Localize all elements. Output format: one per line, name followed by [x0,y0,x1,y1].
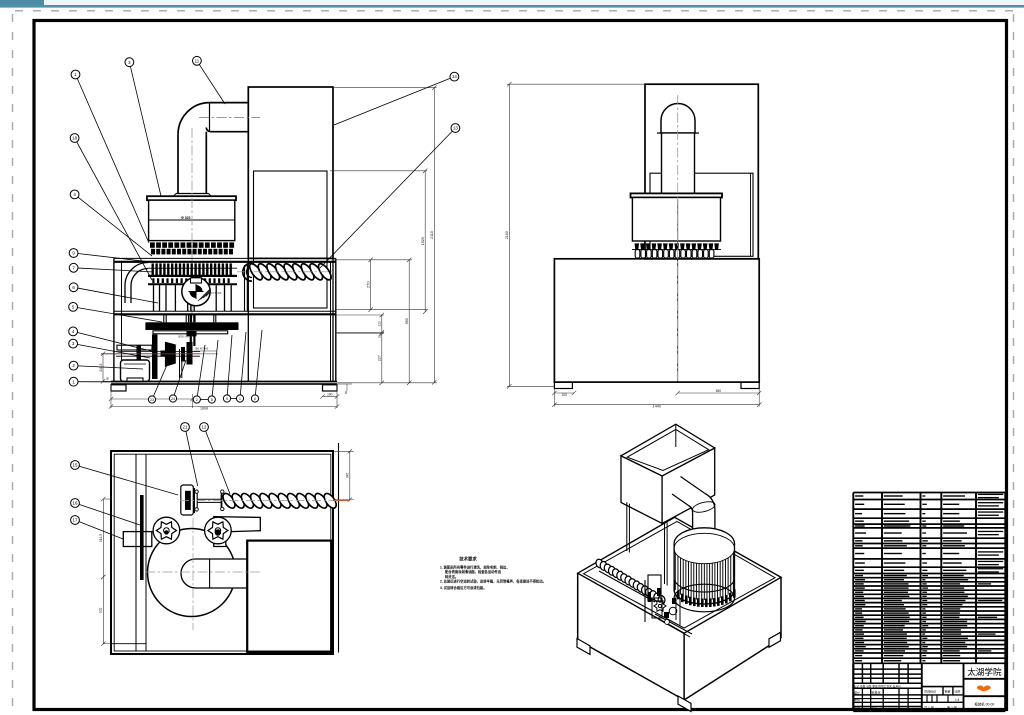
svg-text:转灵活。: 转灵活。 [445,574,458,579]
svg-text:11: 11 [195,58,200,63]
svg-text:技术要求: 技术要求 [459,556,477,563]
svg-text:瓶装机 00-00: 瓶装机 00-00 [975,702,995,707]
svg-text:270: 270 [365,281,370,288]
svg-text:18: 18 [72,136,77,141]
svg-text:1: 1 [239,397,241,401]
svg-text:3. 试运转合格后方可涂漆包装。: 3. 试运转合格后方可涂漆包装。 [440,585,487,590]
svg-text:570: 570 [99,607,103,613]
svg-text:5: 5 [226,397,228,401]
svg-text:8: 8 [211,398,213,402]
svg-text:23: 23 [150,398,154,402]
svg-text:227: 227 [378,355,382,361]
svg-text:Φ6 M7/h6: Φ6 M7/h6 [195,347,209,351]
svg-text:工艺: 工艺 [854,706,860,711]
svg-text:审核: 审核 [854,696,860,701]
svg-text:100: 100 [562,393,568,397]
svg-text:2160: 2160 [505,231,509,239]
svg-text:阶段标记: 阶段标记 [925,689,937,694]
svg-text:14: 14 [452,74,457,79]
svg-text:6: 6 [254,397,256,401]
svg-text:2: 2 [196,398,198,402]
svg-text:50: 50 [344,391,348,395]
svg-text:1. 装配前所有零件进行清洗，去除毛刺、锐边，: 1. 装配前所有零件进行清洗，去除毛刺、锐边， [440,565,510,570]
svg-text:100: 100 [327,393,333,397]
svg-text:2. 总装后进行空运转试验，运转平稳，无异常噪声，各连接处不: 2. 总装后进行空运转试验，运转平稳，无异常噪声，各连接处不得松动。 [440,579,546,584]
svg-text:设计: 设计 [854,689,860,694]
svg-text:Φ 525: Φ 525 [181,216,190,220]
svg-text:21: 21 [183,425,188,430]
svg-text:比例: 比例 [955,689,961,694]
svg-text:重量: 重量 [945,689,951,694]
svg-text:345: 345 [346,473,350,479]
svg-text:218.5: 218.5 [99,363,103,371]
svg-text:2110: 2110 [430,231,434,239]
svg-text:914.5: 914.5 [99,534,103,542]
svg-text:共 1 张: 共 1 张 [924,705,935,710]
svg-text:17: 17 [73,518,78,523]
svg-text:950: 950 [405,318,409,324]
svg-text:1440: 1440 [653,405,661,409]
svg-text:15: 15 [73,463,78,468]
svg-text:25: 25 [378,335,382,339]
svg-text:标准化: 标准化 [872,689,881,694]
svg-text:13: 13 [453,126,458,131]
svg-text:95: 95 [106,377,110,381]
svg-text:12: 12 [202,425,207,430]
svg-text:1608: 1608 [200,407,208,411]
svg-text:1:4: 1:4 [955,698,960,702]
svg-text:1920: 1920 [421,237,425,245]
svg-text:650: 650 [716,389,722,393]
svg-text:第 1 张: 第 1 张 [947,705,958,710]
svg-text:Φ30 H7/k6: Φ30 H7/k6 [178,334,193,338]
svg-text:16: 16 [73,501,78,506]
svg-text:太湖学院: 太湖学院 [967,666,1002,677]
svg-text:110: 110 [378,321,382,327]
svg-text:批准: 批准 [872,706,878,711]
svg-text:Φ60 H7/k6: Φ60 H7/k6 [207,291,222,295]
svg-text:配合表面涂润滑油脂，检查各运动件运: 配合表面涂润滑油脂，检查各运动件运 [445,569,502,574]
svg-text:24: 24 [171,397,175,401]
